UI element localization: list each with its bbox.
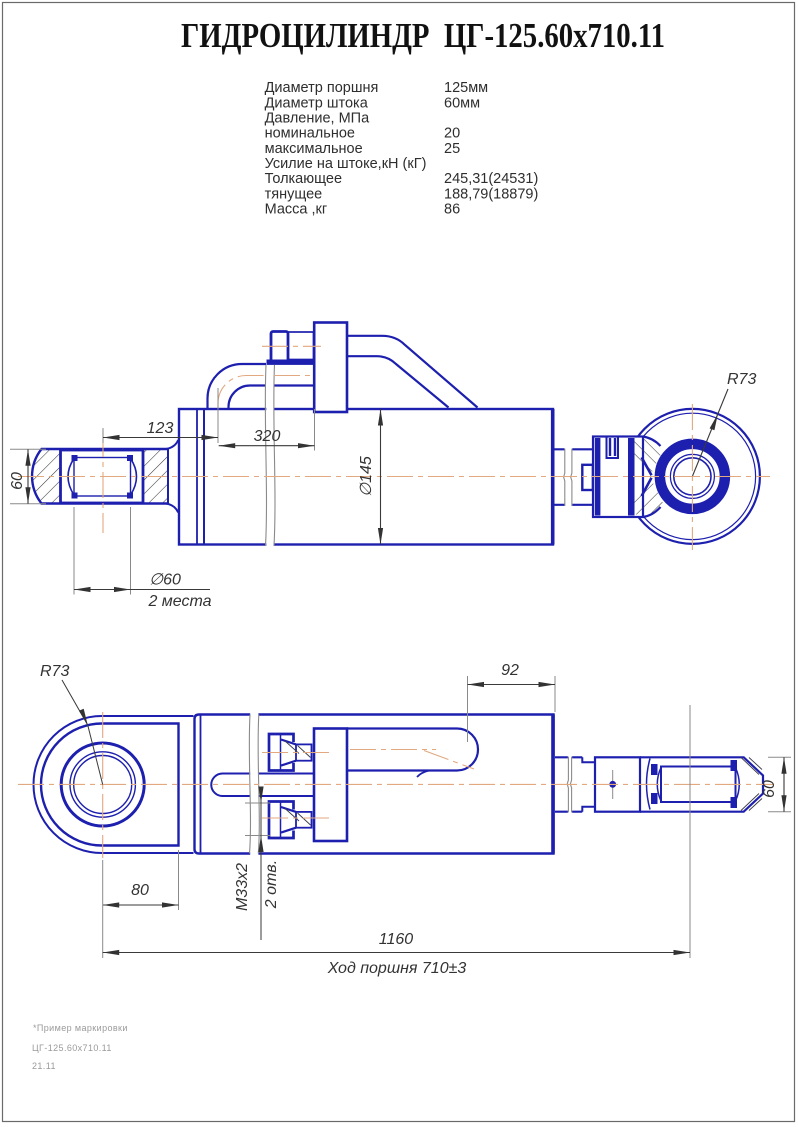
svg-text:∅145: ∅145 <box>358 456 375 497</box>
svg-text:Диаметр штока: Диаметр штока <box>265 95 369 111</box>
svg-text:тянущее: тянущее <box>265 186 323 202</box>
svg-text:максимальное: максимальное <box>265 141 363 157</box>
svg-text:20: 20 <box>444 126 460 142</box>
svg-text:2 отв.: 2 отв. <box>263 860 280 909</box>
svg-text:245,31(24531): 245,31(24531) <box>444 171 538 187</box>
svg-text:60: 60 <box>9 472 26 490</box>
svg-text:Давление, МПа: Давление, МПа <box>265 111 371 127</box>
svg-text:номинальное: номинальное <box>265 126 355 142</box>
svg-text:60мм: 60мм <box>444 95 480 111</box>
svg-text:Ход поршня 710±3: Ход поршня 710±3 <box>327 960 467 977</box>
svg-text:125мм: 125мм <box>444 80 488 96</box>
svg-text:R73: R73 <box>40 663 69 680</box>
svg-text:Масса ,кг: Масса ,кг <box>265 201 328 217</box>
svg-text:2 места: 2 места <box>147 593 211 610</box>
svg-text:92: 92 <box>501 662 519 679</box>
svg-text:Толкающее: Толкающее <box>265 171 342 187</box>
svg-text:*Пример маркировки: *Пример маркировки <box>33 1023 128 1033</box>
svg-text:Диаметр поршня: Диаметр поршня <box>265 80 379 96</box>
svg-text:21.11: 21.11 <box>32 1061 56 1071</box>
svg-text:188,79(18879): 188,79(18879) <box>444 186 538 202</box>
svg-text:ЦГ-125.60х710.11: ЦГ-125.60х710.11 <box>32 1043 112 1053</box>
svg-text:123: 123 <box>147 420 174 437</box>
svg-text:86: 86 <box>444 201 460 217</box>
svg-text:60: 60 <box>761 780 778 798</box>
svg-text:1160: 1160 <box>379 931 414 948</box>
svg-text:∅60: ∅60 <box>149 572 181 589</box>
svg-text:25: 25 <box>444 141 460 157</box>
svg-text:М33х2: М33х2 <box>234 863 251 911</box>
svg-text:ГИДРОЦИЛИНДР ЦГ-125.60х710.11: ГИДРОЦИЛИНДР ЦГ-125.60х710.11 <box>181 16 665 55</box>
svg-text:80: 80 <box>131 882 149 899</box>
svg-text:R73: R73 <box>727 371 756 388</box>
svg-text:Усилие на штоке,кН (кГ): Усилие на штоке,кН (кГ) <box>265 156 427 172</box>
svg-text:320: 320 <box>254 428 281 445</box>
